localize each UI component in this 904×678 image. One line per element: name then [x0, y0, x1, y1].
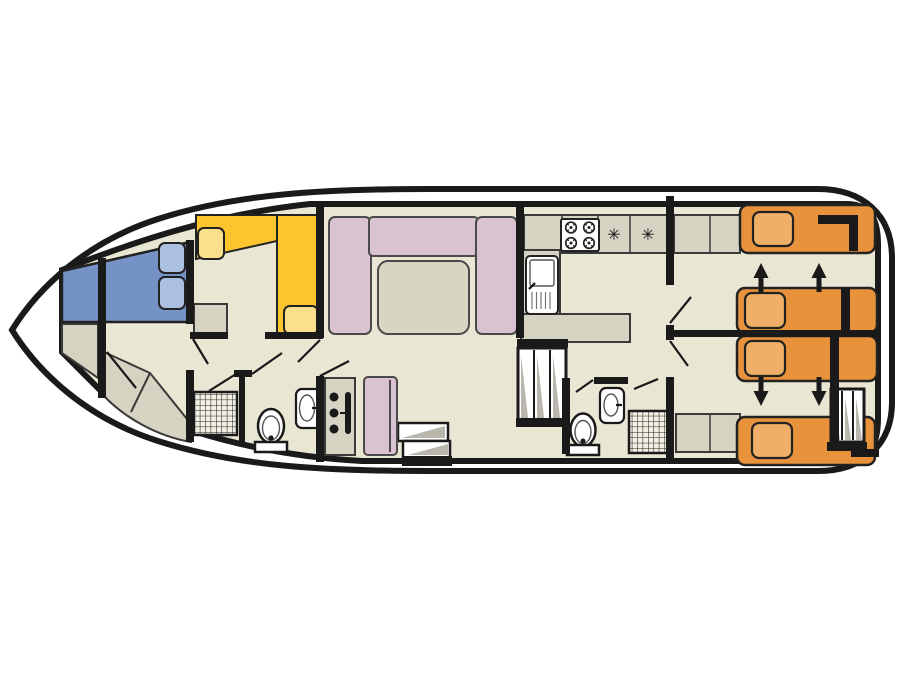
stern-bed-mid-upper	[737, 288, 877, 333]
bow-cabin-wall	[186, 240, 194, 324]
galley-stairs	[516, 339, 568, 427]
toilet-icon	[255, 409, 287, 452]
appliance-symbol-2: ✳	[641, 225, 654, 244]
galley-sink-icon	[526, 256, 558, 314]
front-bathroom-west-wall	[186, 370, 194, 442]
boat-deck-plan: ✳ ✳	[0, 0, 904, 678]
saloon-west-wall-lower	[316, 376, 324, 462]
helm-instrument-1	[330, 393, 339, 402]
saloon-table	[378, 261, 469, 334]
yellow-cushion-1	[198, 228, 224, 259]
aft-bathroom-stub-wall	[594, 377, 628, 384]
saloon-west-wall-upper	[316, 203, 324, 338]
yellow-cabin-wall-right	[265, 332, 323, 339]
stern-inner-wall-lower	[830, 333, 839, 447]
steering-wheel-icon	[345, 392, 351, 434]
bow-bed-pillow-2	[159, 277, 185, 309]
helm-console	[325, 378, 355, 455]
galley-west-wall	[516, 203, 524, 338]
washbasin-icon	[600, 388, 624, 423]
stern-inner-wall-upper	[841, 288, 850, 333]
helm-instrument-3	[330, 425, 339, 434]
deck-plan-svg: ✳ ✳	[0, 0, 904, 678]
stern-bed-mid-lower	[737, 336, 877, 381]
helm-instrument-2	[330, 409, 339, 418]
stern-bulkhead-upper	[666, 196, 674, 285]
entry-steps	[398, 423, 452, 466]
bow-locker-wall	[98, 258, 106, 398]
stove-icon	[561, 219, 599, 251]
toilet-icon	[567, 414, 599, 456]
yellow-cabin-wall-left	[190, 332, 228, 339]
front-bathroom-post	[234, 370, 252, 377]
stern-bed-top	[740, 205, 875, 253]
stern-bulkhead-lower	[666, 377, 674, 462]
yellow-cushion-2	[284, 306, 318, 334]
aft-bathroom-west-wall	[562, 378, 570, 454]
appliance-symbol-1: ✳	[607, 225, 620, 244]
shower-stall-wall	[239, 377, 245, 442]
bow-bed-pillow-1	[159, 243, 185, 273]
helm-seat	[364, 377, 397, 455]
